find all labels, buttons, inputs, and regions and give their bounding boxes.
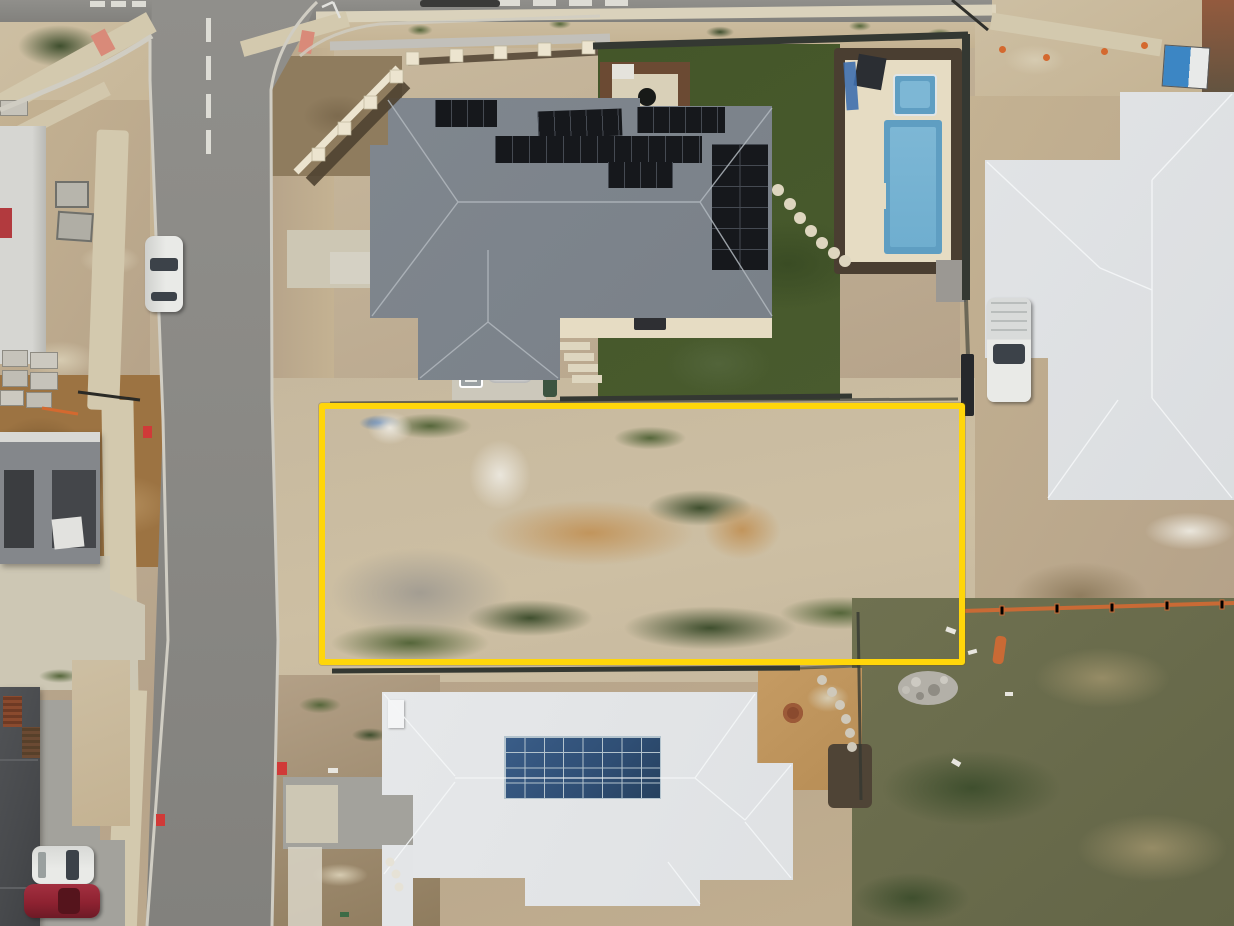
solar-array-c xyxy=(637,107,725,133)
roof-vent xyxy=(388,700,404,728)
crate-2 xyxy=(56,211,94,242)
bottom-driveway-pad xyxy=(286,785,338,843)
solar-array-d xyxy=(495,136,702,163)
top-house-porch xyxy=(330,252,374,284)
pallet-7 xyxy=(0,100,28,116)
fire-pit-garden xyxy=(783,703,803,723)
pool-step xyxy=(877,183,886,209)
traffic-cone-3 xyxy=(1101,48,1108,55)
portaloo xyxy=(1162,44,1211,89)
bottom-house-garage xyxy=(382,845,413,926)
patio-bbq xyxy=(634,317,666,330)
left-house-bench xyxy=(52,517,85,550)
aerial-photo xyxy=(0,0,1234,926)
corner-house-timber xyxy=(22,727,40,758)
pergola-table xyxy=(612,64,634,79)
driveway-car-white-rear xyxy=(38,852,46,878)
corner-house-dirt xyxy=(72,656,130,826)
solar-array-a xyxy=(435,100,497,127)
pallet-4 xyxy=(30,372,58,390)
spa-water xyxy=(900,81,930,108)
crate-1 xyxy=(55,181,89,208)
roadside-pad xyxy=(288,847,322,926)
left-building-sliver xyxy=(0,126,46,364)
corner-house-rust-patch xyxy=(3,696,22,727)
ac-unit xyxy=(459,364,483,388)
red-tarp-item xyxy=(0,208,12,238)
left-house-driveway xyxy=(0,556,110,660)
pallet-5 xyxy=(0,390,24,406)
red-marker-2 xyxy=(156,814,165,826)
pool-utility-pad xyxy=(936,260,966,302)
pallet-6 xyxy=(26,392,52,408)
lot-boundary-highlight xyxy=(319,403,965,665)
pallet-3 xyxy=(2,370,28,387)
pallet-1 xyxy=(2,350,28,367)
ute-canopy-frame xyxy=(991,302,1027,338)
left-house-fascia xyxy=(0,432,100,442)
left-house-opening-1 xyxy=(4,470,34,548)
solar-array-e xyxy=(608,162,673,188)
wheelie-bin xyxy=(543,372,557,397)
pool-shed xyxy=(853,54,886,90)
red-marker-3 xyxy=(277,762,287,775)
pool-water xyxy=(890,127,936,247)
ute-cab-glass xyxy=(993,344,1025,364)
solar-array-b xyxy=(538,109,623,139)
pallet-2 xyxy=(30,352,58,369)
garden-bed-soil xyxy=(828,744,872,808)
driveway-car-red-glass xyxy=(58,888,80,914)
top-road-car xyxy=(420,0,500,7)
dirt-corner-ne xyxy=(268,56,402,176)
street-car-rear-window xyxy=(151,292,177,301)
traffic-cone-2 xyxy=(1043,54,1050,61)
street-car-windshield xyxy=(150,258,178,271)
red-marker-1 xyxy=(143,426,152,438)
fire-pit xyxy=(638,88,656,106)
traffic-cone-4 xyxy=(1141,42,1148,49)
driveway-car-white-windshield xyxy=(66,850,79,880)
water-tank xyxy=(487,366,533,383)
traffic-cone-1 xyxy=(999,46,1006,53)
solar-array-bottom xyxy=(505,737,660,798)
solar-array-f xyxy=(712,144,768,270)
